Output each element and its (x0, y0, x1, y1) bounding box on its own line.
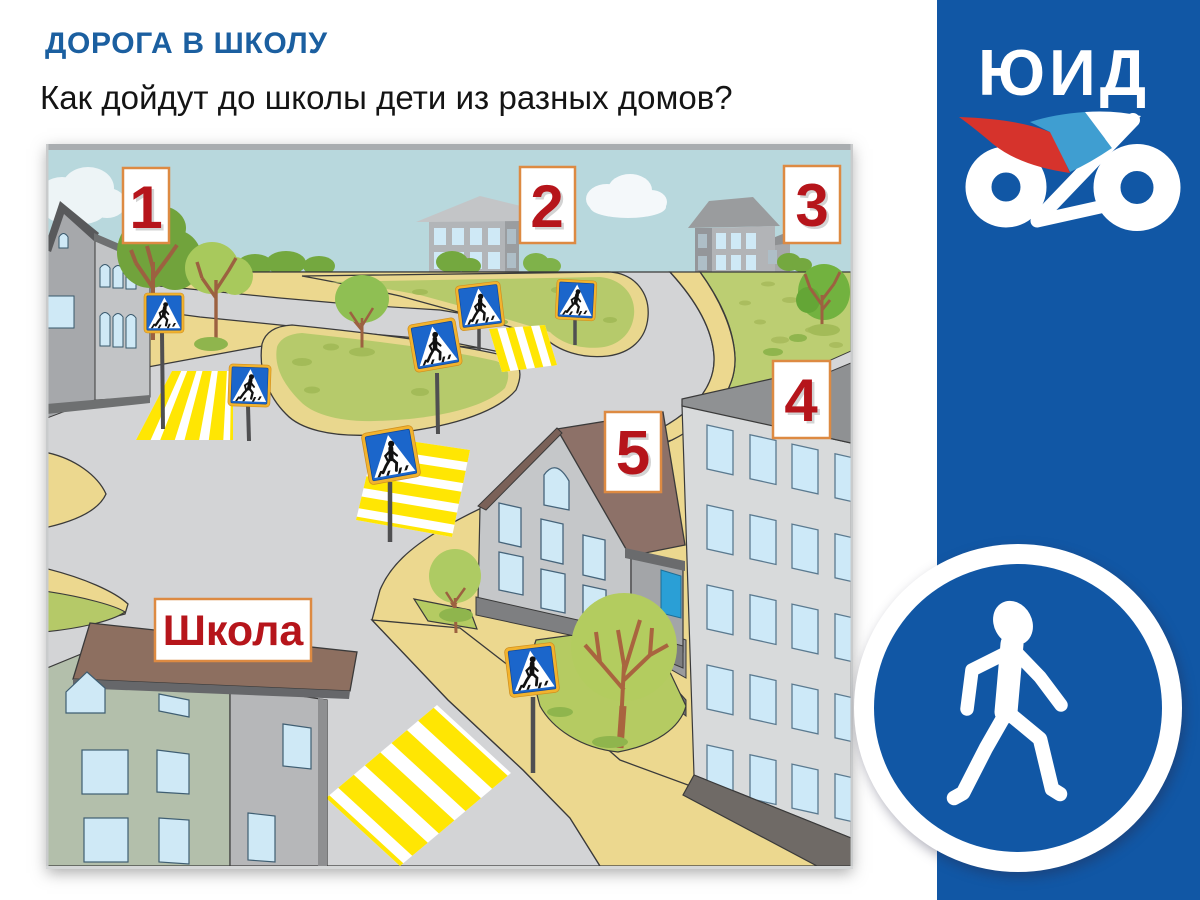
svg-text:1: 1 (129, 174, 162, 241)
svg-text:3: 3 (795, 172, 828, 239)
svg-text:ЮИД: ЮИД (978, 36, 1150, 109)
svg-text:4: 4 (784, 367, 818, 434)
svg-text:5: 5 (616, 419, 650, 488)
svg-text:2: 2 (530, 173, 563, 240)
svg-text:Школа: Школа (163, 607, 305, 655)
